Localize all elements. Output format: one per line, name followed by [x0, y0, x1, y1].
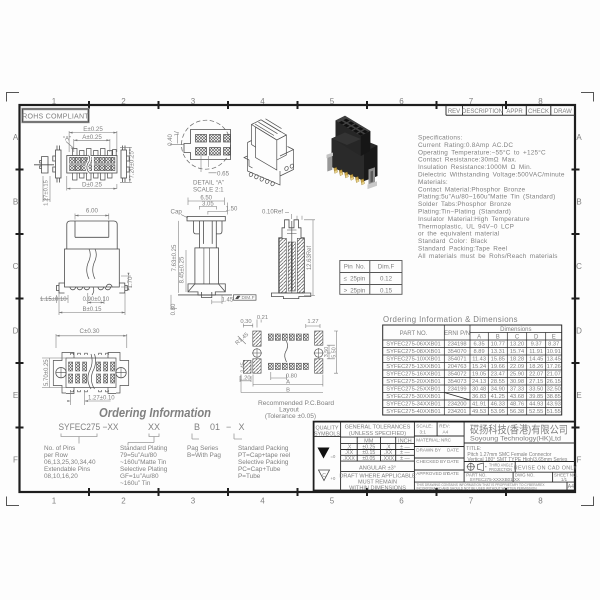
svg-text:=0: =0	[331, 454, 336, 459]
svg-text:REVISE ON CAD ONLY: REVISE ON CAD ONLY	[514, 465, 578, 471]
svg-text:SYFEC275-16XXB01: SYFEC275-16XXB01	[386, 372, 440, 378]
svg-text:06,13,25,30,34,40: 06,13,25,30,34,40	[44, 459, 96, 466]
svg-text:B: B	[496, 335, 500, 341]
svg-text:48.76: 48.76	[510, 402, 524, 408]
svg-text:B: B	[13, 198, 18, 207]
svg-text:204763: 204763	[448, 364, 467, 370]
svg-text:C: C	[515, 335, 520, 341]
svg-text:D: D	[576, 327, 582, 336]
svg-text:DETAIL “A”: DETAIL “A”	[193, 180, 224, 187]
svg-text:SYFEC275-30XXB01: SYFEC275-30XXB01	[386, 394, 440, 400]
svg-text:2: 2	[121, 497, 126, 506]
svg-text:1.27: 1.27	[307, 319, 318, 325]
svg-text:Contact Material:Phosphor Bron: Contact Material:Phosphor Bronze	[418, 186, 526, 193]
svg-text:Standard Packing:Tape Reel: Standard Packing:Tape Reel	[418, 246, 507, 253]
svg-text:0.40: 0.40	[168, 134, 174, 146]
svg-text:7.20±0.25: 7.20±0.25	[129, 151, 136, 179]
svg-text:C: C	[576, 262, 582, 271]
svg-text:PART NO.: PART NO.	[400, 331, 428, 337]
svg-text:2.45: 2.45	[241, 362, 247, 373]
svg-text:6.00: 6.00	[86, 208, 99, 215]
svg-text:Vertical 180° SMT TYPE High|3.: Vertical 180° SMT TYPE High|3.65mm Serie…	[467, 457, 567, 463]
svg-text:E±0.25: E±0.25	[83, 126, 103, 133]
svg-text:.XXX: .XXX	[343, 456, 355, 462]
svg-text:No. of Pins: No. of Pins	[44, 445, 75, 452]
svg-text:1.15±0.10: 1.15±0.10	[40, 297, 67, 303]
svg-text:Thermoplastic, UL 94V−0 LCP: Thermoplastic, UL 94V−0 LCP	[418, 223, 514, 230]
svg-text:DESCRIPTION: DESCRIPTION	[462, 109, 503, 115]
svg-text:ROHS COMPLIANT: ROHS COMPLIANT	[22, 113, 89, 121]
svg-text:Specifications:: Specifications:	[418, 135, 463, 142]
svg-text:13.20: 13.20	[510, 342, 524, 348]
svg-text:21.07: 21.07	[547, 372, 561, 378]
svg-text:7: 7	[469, 97, 474, 106]
svg-text:5: 5	[330, 97, 335, 106]
svg-text:ANGULAR ±3°: ANGULAR ±3°	[359, 465, 396, 471]
svg-text:A4: A4	[443, 430, 449, 435]
svg-text:DRAWN BY: DRAWN BY	[416, 448, 441, 453]
svg-text:7: 7	[469, 497, 474, 506]
svg-text:APPR: APPR	[506, 109, 523, 115]
svg-text:23.47: 23.47	[491, 372, 505, 378]
svg-text:CHECKED BY: CHECKED BY	[416, 459, 446, 464]
svg-text:SYFEC275-20XXB01: SYFEC275-20XXB01	[386, 379, 440, 385]
svg-text:14.45: 14.45	[529, 357, 543, 363]
svg-text:3.05: 3.05	[202, 202, 214, 208]
svg-text:C±0.30: C±0.30	[80, 328, 100, 335]
svg-text:234201: 234201	[448, 409, 467, 415]
svg-text:33.50: 33.50	[529, 387, 543, 393]
svg-text:41.91: 41.91	[472, 402, 486, 408]
svg-text:Cap: Cap	[171, 209, 183, 216]
svg-text:PT=Cap+tape reel: PT=Cap+tape reel	[238, 452, 290, 459]
svg-text:MM: MM	[364, 438, 374, 444]
svg-text:REV:: REV:	[439, 424, 450, 429]
svg-text:Dim.F: Dim.F	[378, 264, 395, 271]
svg-text:5.70±0.25: 5.70±0.25	[44, 359, 50, 386]
svg-text:(Tolerance ±0.05): (Tolerance ±0.05)	[265, 413, 316, 420]
svg-text:DRAW: DRAW	[554, 109, 572, 115]
svg-text:Dielectric Withstanding Voltag: Dielectric Withstanding Voltage:500VAC/m…	[418, 172, 565, 179]
svg-text:1/1: 1/1	[561, 477, 568, 482]
svg-text:1.45: 1.45	[222, 297, 234, 303]
svg-text:PC=Cap+Tube: PC=Cap+Tube	[238, 466, 281, 473]
svg-text:28.55: 28.55	[491, 379, 505, 385]
svg-text:Dimensions: Dimensions	[500, 327, 531, 333]
svg-text:Current Rating:0.8Amp AC.DC: Current Rating:0.8Amp AC.DC	[418, 142, 513, 149]
svg-text:Solder Tabs:Phosphor Bronze: Solder Tabs:Phosphor Bronze	[418, 201, 512, 208]
svg-text:SYFEC275-10XXB01: SYFEC275-10XXB01	[386, 357, 440, 363]
svg-text:D: D	[13, 327, 19, 336]
svg-text:3:1: 3:1	[420, 430, 427, 435]
svg-text:19.66: 19.66	[491, 364, 505, 370]
svg-text:A±0.25: A±0.25	[82, 134, 102, 141]
svg-text:C: C	[322, 473, 326, 479]
svg-text:0.80: 0.80	[171, 303, 177, 315]
svg-text:1.27±0.15: 1.27±0.15	[44, 180, 50, 206]
svg-text:A: A	[13, 133, 19, 142]
svg-text:Pag Series: Pag Series	[187, 445, 218, 452]
svg-text:11.43: 11.43	[472, 357, 486, 363]
svg-text:Standard Plating: Standard Plating	[120, 445, 168, 452]
svg-text:SYMBOLS: SYMBOLS	[314, 432, 340, 438]
svg-text:41.25: 41.25	[491, 394, 505, 400]
svg-text:43.68: 43.68	[510, 394, 524, 400]
svg-text:A4: A4	[568, 484, 574, 490]
svg-text:SYFEC275-25XXB01: SYFEC275-25XXB01	[386, 387, 440, 393]
svg-text:8: 8	[538, 497, 543, 506]
svg-text:15.24: 15.24	[472, 364, 486, 370]
svg-text:1.50: 1.50	[226, 207, 238, 213]
svg-text:F: F	[13, 456, 18, 465]
svg-text:5.50: 5.50	[332, 347, 338, 358]
svg-text:13.45: 13.45	[547, 357, 561, 363]
svg-text:DWG NO.: DWG NO.	[515, 473, 535, 478]
svg-text:−: −	[226, 422, 231, 432]
svg-text:INCH: INCH	[398, 438, 412, 444]
svg-text:+0: +0	[331, 476, 336, 481]
svg-text:08,10,16,20: 08,10,16,20	[44, 473, 78, 480]
svg-text:8.37: 8.37	[548, 342, 559, 348]
svg-text:0.30: 0.30	[240, 319, 251, 325]
svg-text:DIM.F: DIM.F	[242, 295, 255, 301]
svg-text:10.77: 10.77	[491, 342, 505, 348]
svg-text:3.50: 3.50	[324, 347, 330, 358]
svg-text:1.70: 1.70	[128, 276, 134, 288]
svg-text:8.45±0.25: 8.45±0.25	[180, 256, 186, 283]
svg-text:8: 8	[538, 97, 543, 106]
svg-text:354072: 354072	[448, 372, 467, 378]
svg-text:GF=1u”Au/80: GF=1u”Au/80	[120, 473, 159, 480]
svg-text:Standard Color: Black: Standard Color: Black	[418, 238, 488, 245]
svg-text:4: 4	[260, 497, 265, 506]
svg-text:6.35: 6.35	[474, 342, 485, 348]
svg-text:± —: ± —	[400, 456, 410, 462]
svg-text:13.31: 13.31	[491, 349, 505, 355]
svg-text:Standard Packing: Standard Packing	[238, 445, 289, 452]
svg-text:27.15: 27.15	[529, 379, 543, 385]
svg-text:79=5u”Au/80: 79=5u”Au/80	[120, 452, 157, 459]
svg-text:A: A	[286, 380, 290, 386]
svg-text:Insulator Material:High Temper: Insulator Material:High Temperature	[418, 216, 530, 223]
svg-text:MATERIAL:: MATERIAL:	[416, 438, 440, 443]
svg-text:01: 01	[210, 422, 220, 432]
svg-text:24.13: 24.13	[472, 379, 486, 385]
svg-text:234199: 234199	[448, 387, 467, 393]
svg-text:Operating Temperature:−55°C to: Operating Temperature:−55°C to +125°C	[418, 148, 546, 156]
svg-text:354070: 354070	[448, 349, 467, 355]
svg-text:INCORPORATED AND SHOULD NOT BE: INCORPORATED AND SHOULD NOT BE USED WITH…	[417, 487, 537, 491]
svg-text:P=Tube: P=Tube	[238, 473, 261, 480]
svg-text:2: 2	[121, 97, 126, 106]
svg-text:> 25pin: > 25pin	[344, 288, 366, 295]
svg-text:22.07: 22.07	[529, 372, 543, 378]
svg-text:3: 3	[191, 497, 196, 506]
svg-text:51.55: 51.55	[547, 409, 561, 415]
svg-text:B: B	[194, 422, 200, 432]
svg-text:0.10Ref: 0.10Ref	[262, 210, 283, 216]
svg-text:E: E	[13, 391, 18, 400]
svg-text:6: 6	[399, 497, 404, 506]
svg-text:砹扬科技(香港)有限公司: 砹扬科技(香港)有限公司	[470, 423, 568, 436]
svg-text:(UNLESS SPECIFIED): (UNLESS SPECIFIED)	[349, 431, 406, 437]
svg-text:19.05: 19.05	[472, 372, 486, 378]
svg-text:SYFEC275-40XXB01: SYFEC275-40XXB01	[386, 409, 440, 415]
svg-text:49.53: 49.53	[472, 409, 486, 415]
svg-text:0.65: 0.65	[217, 170, 230, 177]
svg-text:15.85: 15.85	[491, 357, 505, 363]
svg-text:B: B	[576, 198, 581, 207]
svg-text:32.50: 32.50	[547, 387, 561, 393]
svg-text:Pin No.: Pin No.	[344, 264, 366, 271]
svg-text:NRC: NRC	[441, 438, 452, 443]
svg-text:SYFEC275-06XXB01: SYFEC275-06XXB01	[386, 342, 440, 348]
svg-text:DATE: DATE	[447, 448, 459, 453]
svg-text:B±0.15: B±0.15	[83, 307, 103, 313]
svg-text:37.33: 37.33	[510, 387, 524, 393]
svg-text:Ordering Information & Dimensi: Ordering Information & Dimensions	[383, 315, 518, 324]
svg-text:38.85: 38.85	[547, 394, 561, 400]
svg-text:APPROVED BY: APPROVED BY	[416, 471, 449, 476]
svg-text:F: F	[577, 456, 582, 465]
svg-text:52.55: 52.55	[529, 409, 543, 415]
svg-text:Extendable Pins: Extendable Pins	[44, 466, 90, 473]
svg-text:34.90: 34.90	[491, 387, 505, 393]
svg-text:ERNI P/N: ERNI P/N	[444, 331, 470, 337]
svg-text:0.15: 0.15	[380, 288, 393, 295]
svg-text:1.27±0.10: 1.27±0.10	[88, 395, 115, 401]
svg-text:44.93: 44.93	[529, 402, 543, 408]
svg-text:C: C	[13, 262, 19, 271]
svg-text:Plating:5u”Au/80~160u”Matte Ti: Plating:5u”Au/80~160u”Matte Tin (Standar…	[418, 194, 555, 201]
svg-text:11.91: 11.91	[529, 349, 543, 355]
svg-text:30.98: 30.98	[510, 379, 524, 385]
svg-text:6: 6	[399, 97, 404, 106]
svg-text:.XXX: .XXX	[382, 456, 394, 462]
svg-text:DATE: DATE	[447, 471, 459, 476]
svg-text:39.85: 39.85	[529, 394, 543, 400]
svg-text:SYFEC275 −XX: SYFEC275 −XX	[59, 422, 119, 432]
svg-text:per Row: per Row	[44, 452, 68, 459]
svg-text:~160u”Matte Tin: ~160u”Matte Tin	[120, 459, 167, 466]
svg-text:Plating:Tin−Plating (Standard): Plating:Tin−Plating (Standard)	[418, 209, 511, 216]
svg-text:E: E	[576, 391, 581, 400]
svg-text:or the equivalent material: or the equivalent material	[418, 231, 499, 238]
svg-text:REV: REV	[448, 109, 460, 115]
svg-text:Materials:: Materials:	[418, 179, 448, 186]
svg-text:17.26: 17.26	[547, 364, 561, 370]
svg-text:DATE: DATE	[447, 459, 459, 464]
svg-text:E: E	[552, 335, 556, 341]
svg-text:354071: 354071	[448, 357, 467, 363]
svg-text:A: A	[576, 133, 582, 142]
svg-text:SCALE:: SCALE:	[416, 424, 432, 429]
svg-text:12.63Ref: 12.63Ref	[307, 245, 313, 270]
svg-text:~160u” Tin: ~160u” Tin	[120, 480, 151, 487]
svg-text:4: 4	[260, 97, 265, 106]
svg-text:B: B	[286, 388, 290, 394]
svg-text:Selective Packing: Selective Packing	[238, 459, 289, 466]
svg-text:43.93: 43.93	[547, 402, 561, 408]
svg-text:7.63±0.25: 7.63±0.25	[172, 244, 178, 271]
svg-text:234200: 234200	[448, 402, 467, 408]
svg-text:Insulation Resistance:1000M Ω: Insulation Resistance:1000M Ω Min.	[418, 164, 532, 171]
svg-text:±0.05: ±0.05	[362, 456, 375, 462]
svg-text:1: 1	[52, 497, 57, 506]
svg-text:X: X	[239, 422, 245, 432]
svg-text:B=With Pag: B=With Pag	[187, 452, 221, 459]
svg-text:9.37: 9.37	[531, 342, 542, 348]
svg-text:Selective Plating: Selective Plating	[120, 466, 168, 473]
svg-text:SYFEC275-08XXB01: SYFEC275-08XXB01	[386, 349, 440, 355]
svg-text:8.89: 8.89	[474, 349, 485, 355]
svg-text:0.12: 0.12	[380, 276, 393, 283]
svg-text:GENERAL TOLERANCES: GENERAL TOLERANCES	[345, 424, 411, 430]
svg-text:D: D	[534, 335, 539, 341]
svg-text:WITHIN DIMENSIONS: WITHIN DIMENSIONS	[349, 486, 406, 492]
svg-text:26.15: 26.15	[547, 379, 561, 385]
svg-text:46.33: 46.33	[491, 402, 505, 408]
svg-text:All materials must be Rohs/Rea: All materials must be Rohs/Reach materia…	[418, 253, 558, 260]
svg-text:30.48: 30.48	[472, 387, 486, 393]
svg-text:18.28: 18.28	[510, 357, 524, 363]
svg-text:18.26: 18.26	[529, 364, 543, 370]
svg-text:Soyoung Technology(HK)Ltd: Soyoung Technology(HK)Ltd	[470, 436, 561, 443]
svg-text:53.95: 53.95	[491, 409, 505, 415]
svg-text:SYFEC275-13XXB01: SYFEC275-13XXB01	[386, 364, 440, 370]
svg-text:XX: XX	[148, 422, 160, 432]
svg-text:5: 5	[330, 497, 335, 506]
svg-text:≤ 25pin: ≤ 25pin	[344, 276, 366, 283]
svg-text:SYFEC275-34XXB01: SYFEC275-34XXB01	[386, 402, 440, 408]
svg-text:Ordering Information: Ordering Information	[99, 406, 211, 420]
svg-text:SYFEC275-XXXXB01-XX: SYFEC275-XXXXB01-XX	[470, 477, 520, 482]
svg-text:10.91: 10.91	[547, 349, 561, 355]
svg-text:D±0.25: D±0.25	[82, 181, 102, 188]
svg-text:0.90±0.10: 0.90±0.10	[83, 297, 110, 303]
svg-text:0.21: 0.21	[257, 315, 268, 321]
svg-text:PROJECTION: PROJECTION	[489, 467, 512, 473]
svg-text:Contact Resistance:30mΩ Max.: Contact Resistance:30mΩ Max.	[418, 157, 517, 164]
svg-text:22.09: 22.09	[510, 364, 524, 370]
svg-text:15.74: 15.74	[510, 349, 524, 355]
svg-text:1: 1	[52, 97, 57, 106]
svg-text:36.83: 36.83	[472, 394, 486, 400]
svg-text:SCALE 2:1: SCALE 2:1	[193, 187, 224, 194]
svg-text:354073: 354073	[448, 379, 467, 385]
svg-text:25.90: 25.90	[510, 372, 524, 378]
svg-text:3: 3	[191, 97, 196, 106]
svg-text:A: A	[477, 335, 481, 341]
svg-text:234198: 234198	[448, 342, 467, 348]
svg-text:1.20: 1.20	[239, 376, 250, 382]
svg-text:56.38: 56.38	[510, 409, 524, 415]
svg-text:“A”: “A”	[63, 137, 71, 143]
svg-text:CHECK: CHECK	[528, 109, 549, 115]
